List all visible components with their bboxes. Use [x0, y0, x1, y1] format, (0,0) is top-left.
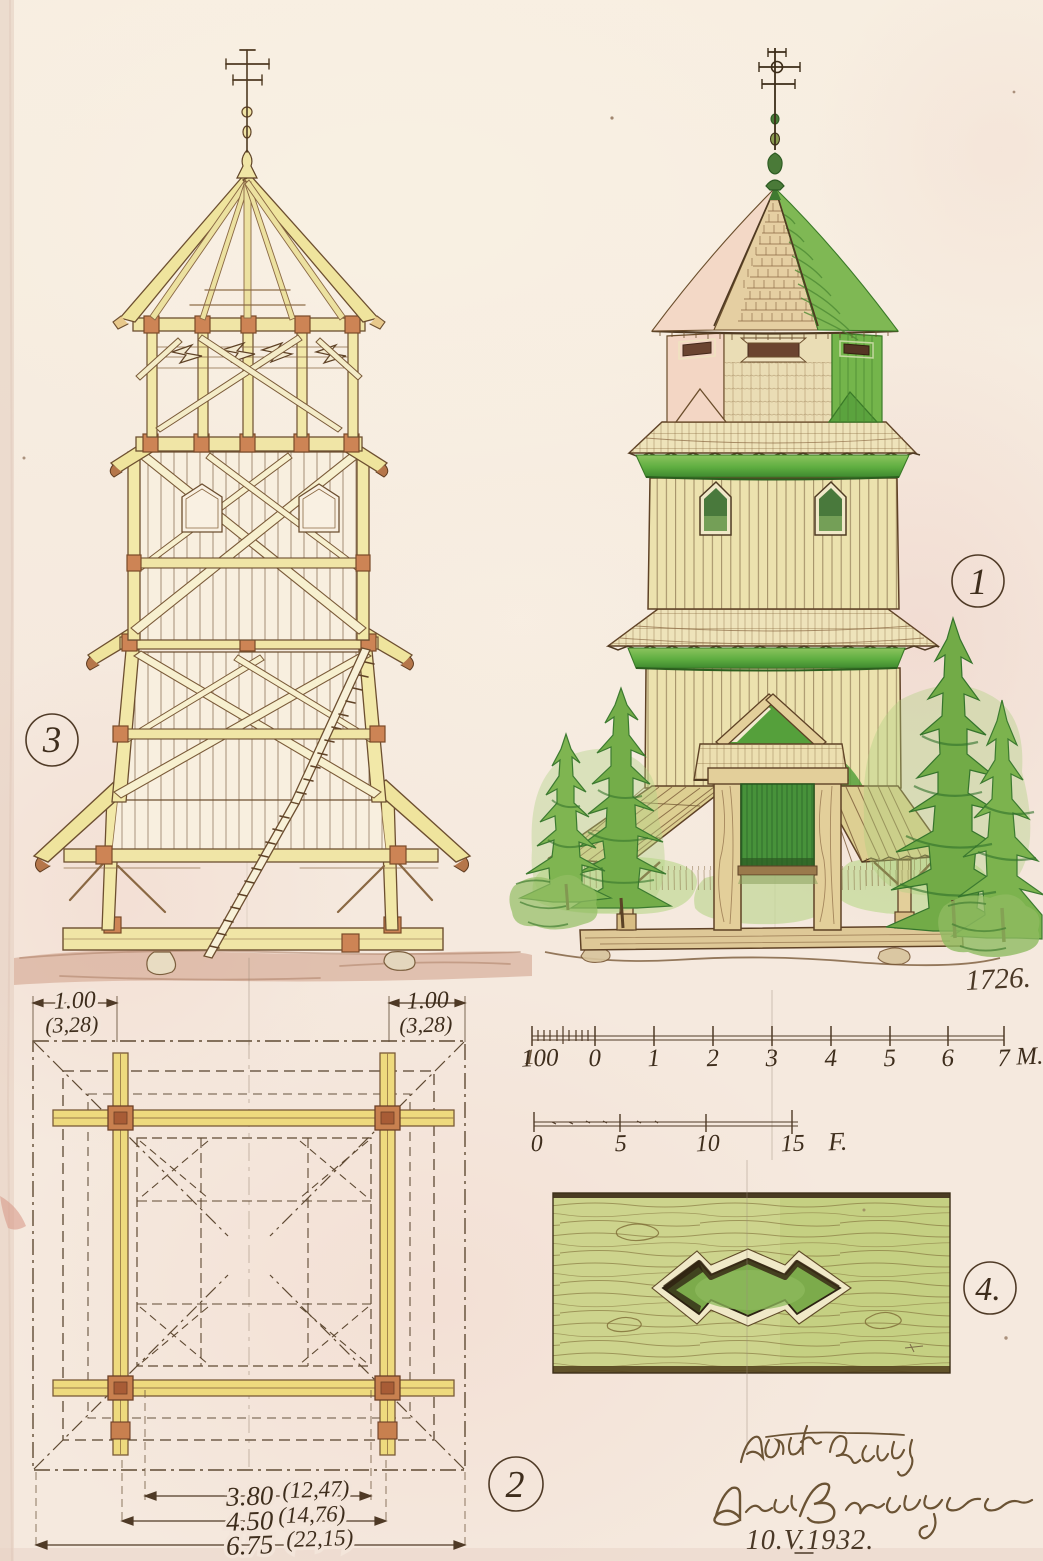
svg-text:(14,76): (14,76) [278, 1501, 346, 1528]
svg-text:100: 100 [521, 1044, 560, 1072]
svg-text:6: 6 [941, 1045, 955, 1072]
svg-text:(12,47): (12,47) [282, 1476, 350, 1503]
svg-text:0: 0 [588, 1045, 602, 1072]
svg-text:(3,28): (3,28) [399, 1011, 453, 1038]
svg-text:3: 3 [764, 1045, 778, 1072]
svg-text:5: 5 [883, 1045, 896, 1072]
svg-text:(22,15): (22,15) [286, 1525, 354, 1552]
svg-text:6.75: 6.75 [226, 1529, 274, 1561]
svg-text:2: 2 [506, 1464, 525, 1506]
svg-text:(3,28): (3,28) [45, 1011, 99, 1038]
svg-text:2: 2 [706, 1045, 719, 1072]
svg-text:10: 10 [695, 1131, 720, 1158]
svg-text:1: 1 [969, 562, 988, 603]
svg-text:10.V.1932.: 10.V.1932. [746, 1525, 875, 1556]
svg-text:1: 1 [647, 1045, 660, 1072]
svg-text:3: 3 [42, 720, 62, 761]
svg-text:0: 0 [530, 1131, 543, 1157]
svg-text:4: 4 [824, 1045, 837, 1072]
svg-text:F.: F. [827, 1127, 848, 1157]
svg-text:1726.: 1726. [965, 962, 1032, 997]
svg-text:5: 5 [614, 1131, 627, 1157]
svg-text:M.: M. [1015, 1043, 1043, 1071]
svg-text:4.: 4. [975, 1271, 1001, 1308]
svg-text:15: 15 [780, 1131, 805, 1158]
